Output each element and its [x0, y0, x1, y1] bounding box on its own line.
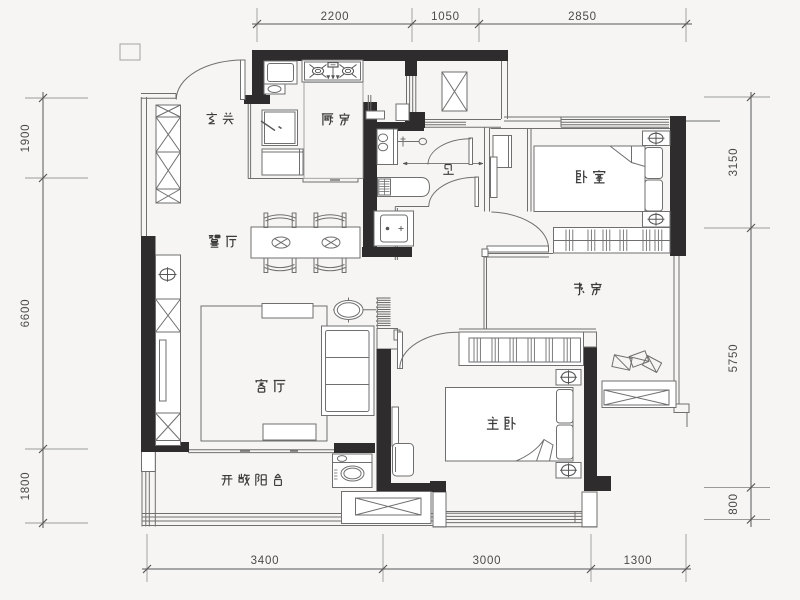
- svg-text:2850: 2850: [568, 11, 597, 23]
- svg-text:1900: 1900: [20, 124, 32, 153]
- svg-text:1050: 1050: [431, 11, 460, 23]
- svg-text:1300: 1300: [624, 555, 653, 567]
- svg-text:3400: 3400: [251, 555, 280, 567]
- svg-text:1800: 1800: [20, 472, 32, 501]
- svg-text:3150: 3150: [728, 148, 740, 177]
- svg-text:3000: 3000: [473, 555, 502, 567]
- svg-text:800: 800: [728, 493, 740, 515]
- svg-text:2200: 2200: [321, 11, 350, 23]
- svg-text:6600: 6600: [20, 299, 32, 328]
- svg-text:5750: 5750: [728, 344, 740, 373]
